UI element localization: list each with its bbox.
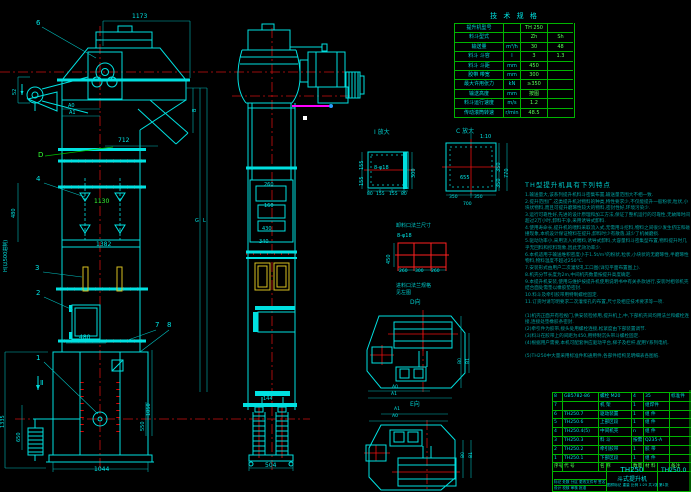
spec-cell-unit [503,23,520,32]
buckets [83,263,289,291]
spec-cell-label: 料斗 斗容 [454,51,503,60]
spec-cell-value1: 30 [520,42,547,51]
spec-cell-value1: TH 250 [520,23,547,32]
bom-cell-code: TH250.2 [562,445,598,454]
bom-cell-code: TH250.4(5) [562,427,598,436]
dim-label: 1335 [1,415,6,428]
bom-cell-material: Q235-A [643,436,669,445]
dim-label: L [203,219,206,224]
notes-block: TH型提升机具有下列特点 1.输送量大,该系列提升机料斗密集布置,输送量范围大不… [525,181,691,361]
spec-cell-value2 [547,23,573,32]
spec-cell-unit [503,32,520,41]
note-line: 9.本提升机安装,使用与维护按提升机使用说明书中有关条款进行,安装时相邻机壳结合… [525,280,691,292]
dim-label: B [193,109,198,112]
spec-cell-value1: 450 [520,61,547,70]
dim-label: E向 [410,402,420,408]
dim-label: 1:10 [480,135,491,140]
spec-row: 料斗 斗容 l 3 1.3 [454,51,574,60]
white-mark [303,116,307,120]
dim-label: 8-φ18 [374,166,389,171]
note-line: 7.安装形式由用户二次灌浆孔工口图(详见平面布置图上). [525,266,691,272]
note-line: 5.驱动功率小,采用流入式喂料,诱导式卸料,大容量料斗密集型布置,物料提升时几乎… [525,239,691,251]
dim-label: A1 [391,393,397,398]
bom-cell-qty: 1 [631,418,643,427]
dim-label: A0 [392,415,398,420]
dim-label: 700 [463,203,472,208]
spec-cell-unit: mm [503,89,520,98]
dim-label: 650 [17,432,22,442]
note-line: (1)机壳正面开有检视门,供安装检修用,提升机上,中,下部机壳间均用法兰和螺栓连… [525,314,691,326]
dim-label: B1 [467,358,472,364]
dim-label: 8 [167,322,171,329]
bom-row: 3 TH250.3 料 斗 按需 Q235-A [552,436,691,445]
dim-label: D向 [410,300,421,306]
bom-cell-no: 5 [552,418,562,427]
dim-label: 712 [118,138,129,144]
dim-label: 155 [360,160,365,170]
note-line: 2.提升范围广,这类提升机对物料的种类,特性要求少,不仅能提升一般粉状,粒状,小… [525,200,691,212]
dim-label: A0 [392,386,398,391]
spec-cell-label: 传动滚筒转速 [454,108,503,117]
dim-label: 480 [12,208,17,218]
bom-cell-no: 3 [552,436,562,445]
bom-cell-note [669,427,691,436]
top-view-e [366,425,456,490]
spec-cell-value2: 1.3 [547,51,573,60]
dim-label: 1 [36,355,40,362]
spec-cell-label: 输送量 [454,42,503,51]
dim-label: C 放大 [456,129,474,135]
bom-cell-note [669,401,691,410]
dim-label: Ⅰ 放大 [374,130,390,136]
spec-cell-label: 料斗型式 [454,32,503,41]
dim-label: 160 [264,204,274,209]
spec-cell-value2 [547,70,573,79]
spec-table-title: 技 术 规 格 [454,11,575,21]
dim-label: 350 [474,196,483,201]
dim-label: A1 [394,408,400,413]
cad-drawing-canvas: 1173 712 A0 A1 52 6 D 4 480 1130 1382 H(… [0,0,691,491]
dim-label: 3 [35,265,39,272]
bom-cell-qty: 1 [631,401,643,410]
spec-cell-value2 [547,89,573,98]
dim-label: B0 [462,452,467,458]
notes-lines: 1.输送量大,该系列提升机料斗密集布置,输送量范围大不相一致.2.提升范围广,这… [525,193,691,361]
bom-cell-name: 料 斗 [598,436,631,445]
spec-row: 最大许用张力 kN ≥350 [454,79,574,88]
dim-label: 260 [264,183,274,188]
spec-cell-label: 料斗 斗距 [454,61,503,70]
bom-cell-note [669,418,691,427]
dim-label: 155 [389,193,398,198]
dim-label: 1173 [132,14,147,20]
spec-cell-label: 胶带 带宽 [454,70,503,79]
drawing-model: TH250 [607,466,657,474]
bom-cell-code: TH250.6 [562,418,598,427]
spec-cell-label: 输送高度 [454,89,503,98]
dim-label: 350 [497,162,502,172]
dim-label: 2 [36,290,40,297]
side-view [238,24,364,466]
dim-label: 80 [367,193,373,198]
note-line: 8.机壳分节长度为2m,中间机壳数量按提升高度确定. [525,273,691,279]
spec-cell-value1: 3 [520,51,547,60]
spec-cell-label: 提升机型号 [454,23,503,32]
centerlines [0,26,427,491]
spec-cell-value2: Sh [547,32,573,41]
note-line [525,308,691,313]
bom-row: 7 机 架 1 组焊件 [552,401,691,410]
spec-row: 提升机型号 TH 250 [454,23,574,32]
bom-cell-material: 组焊件 [643,401,669,410]
bom-cell-name: 中间机壳 [598,427,631,436]
dim-label: 1130 [94,199,109,205]
dim-label: 155 [376,193,385,198]
spec-cell-value2 [547,108,573,117]
bom-cell-note [669,410,691,419]
spec-table-grid: 提升机型号 TH 250 料斗型式 Zh Sh 输送量 m³/h 30 48 料… [454,23,575,118]
dim-label: 155 [360,176,365,186]
discharge-flange-detail [395,243,449,271]
bom-cell-material: 组 件 [643,418,669,427]
spec-row: 胶带 带宽 mm 300 [454,70,574,79]
dim-label: 350 [449,196,458,201]
note-line [525,348,691,353]
bom-cell-no: 8 [552,392,562,401]
bom-row: 5 TH250.6 上部区段 1 组 件 [552,418,691,427]
dim-label: 260 [399,270,408,275]
bom-cell-material: 35 [643,392,669,401]
dim-label: D [38,152,43,159]
dim-label: 450 [387,254,392,264]
bom-cell-code: TH250.3 [562,436,598,445]
bom-cell-note [669,436,691,445]
dim-label: 6 [36,20,40,27]
spec-cell-label: 料斗运行速度 [454,98,503,107]
spec-cell-value1: Zh [520,32,547,41]
bom-row: 4 TH250.4(5) 中间机壳 n 组 件 [552,427,691,436]
spec-row: 料斗型式 Zh Sh [454,32,574,41]
detail-i-flange-bar [403,152,407,189]
spec-cell-unit: kN [503,79,520,88]
bom-cell-no: 4 [552,427,562,436]
spec-cell-value1: 按图 [520,89,547,98]
note-line: 1.输送量大,该系列提升机料斗密集布置,输送量范围大不相一致. [525,193,691,199]
dim-label: 504 [265,463,276,469]
bom-cell-no: 6 [552,410,562,419]
bom-cell-qty: 1 [631,410,643,419]
dim-label: 300 [415,270,424,275]
balloon-leaders [42,27,169,414]
note-line: (2)牵引件为胶带,接头处用螺栓连接,松紧度由下部装置调节. [525,327,691,333]
dim-label: 1050 [147,403,152,416]
bom-cell-qty: 4 [631,392,643,401]
note-line: 10.料斗及牵引胶带用特制螺栓固定. [525,293,691,299]
dim-label: 430 [262,227,272,232]
spec-cell-unit: r/min [503,108,520,117]
bom-cell-no: 7 [552,401,562,410]
spec-row: 传动滚筒转速 r/min 48.5 [454,108,574,117]
dim-label: Ⅱ [40,380,43,387]
bom-rows: 8 GB5782-86 螺栓 M20 4 35 标准件 7 机 架 1 组焊件 … [552,392,691,462]
spec-row: 料斗 斗距 mm 450 [454,61,574,70]
spec-row: 料斗运行速度 m/s 1.2 [454,98,574,107]
bom-cell-code [562,401,598,410]
spec-row: 输送高度 mm 按图 [454,89,574,98]
bom-cell-code: TH250.7 [562,410,598,419]
blue-dot [329,104,333,108]
notes-title: TH型提升机具有下列特点 [525,181,691,190]
note-line: (5)TH250中大量采用标准件和通用件,各部件结构见明细表各图纸. [525,354,691,360]
bom-cell-code: GB5782-86 [562,392,598,401]
note-line: 4.使用寿命长,提升机的喂料采取流入式,无需用斗挖料,物料之间很少发生挤压和碰撞… [525,226,691,238]
bom-cell-qty: 1 [631,445,643,454]
spec-cell-value1: 48.5 [520,108,547,117]
dim-label: 4 [36,176,40,183]
bom-row: 8 GB5782-86 螺栓 M20 4 35 标准件 [552,392,691,401]
spec-cell-unit: mm [503,61,520,70]
bom-cell-material: 组 件 [643,410,669,419]
dim-label: 8-φ18 [397,234,412,239]
spec-cell-unit: m/s [503,98,520,107]
note-line: 11.订货时请写明要求二次灌浆孔的布置,尺寸及相应技术要求等一项. [525,300,691,306]
dim-label: 7 [155,322,159,329]
dim-label: A0 [68,104,75,109]
spec-cell-value1: ≥350 [520,79,547,88]
dim-label: 340 [259,240,269,245]
bom-cell-name: 机 架 [598,401,631,410]
drawing-product-name: 斗式提升机 [607,474,657,483]
spec-cell-value1: 300 [520,70,547,79]
dim-label: 卸料口法兰尺寸 [396,224,431,229]
bom-cell-name: 牵引胶带 [598,445,631,454]
title-block-signatures: 标记 处数 分区 更改文件号 签名 日期 设计 校核 审核 批准 [553,463,607,491]
bom-cell-material: 组 件 [643,427,669,436]
spec-cell-unit: m³/h [503,42,520,51]
bom-cell-name: 上部区段 [598,418,631,427]
note-line: (4)根据用户需要,本机可配套供应驱动平台,梯子及栏杆,配用Y系列电机. [525,341,691,347]
dim-label: 144 [263,397,273,402]
dim-label: 进料口法兰规格 [396,284,431,289]
dim-label: G [195,219,199,224]
dim-label: B1 [470,452,475,458]
spec-cell-value1: 1.2 [520,98,547,107]
bom-cell-name: 螺栓 M20 [598,392,631,401]
bom-cell-note [669,445,691,454]
dim-label: 350 [497,178,502,188]
bom-cell-note: 标准件 [669,392,691,401]
spec-cell-value2 [547,79,573,88]
spec-table: 技 术 规 格 提升机型号 TH 250 料斗型式 Zh Sh 输送量 m³/h… [454,11,575,118]
spec-cell-label: 最大许用张力 [454,79,503,88]
signature-row-2: 设计 校核 审核 批准 [554,485,606,491]
bom-cell-qty: 按需 [631,436,643,445]
dim-label: 52 [13,89,18,95]
spec-cell-value2: 48 [547,42,573,51]
spec-cell-value2 [547,98,573,107]
dim-label: 1044 [94,467,109,473]
dim-label: 80 [401,193,407,198]
note-line: 6.本机适用于输送堆积密度小于1.5t/m³的粉状,粒状,小块状的无磨琢性,半磨… [525,253,691,265]
spec-cell-unit: mm [503,70,520,79]
bom-cell-name: 驱动装置 [598,410,631,419]
dim-label: A1 [69,111,76,116]
dim-label: 300 [412,168,417,178]
dim-label: 770 [505,168,510,178]
note-line: 3.运行可靠性好,先进的设计原理和加工方法,保证了整机运行的可靠性,无故障时间超… [525,213,691,225]
dim-label: 1382 [96,242,111,248]
title-block-scale-row: 图样标记 重量 比例 1:25 共1张 第1张 [607,483,691,488]
dim-label: 550 [141,421,146,431]
spec-row: 输送量 m³/h 30 48 [454,42,574,51]
dim-label: B0 [459,358,464,364]
dim-label: 655 [460,176,470,181]
dim-label: 见左图 [396,291,411,296]
dim-label: 480 [79,335,90,341]
bom-row: 6 TH250.7 驱动装置 1 组 件 [552,410,691,419]
dim-label: H(以500进制) [4,240,9,272]
dim-label: 260 [431,270,440,275]
note-line: (3)料斗在胶带上的间距为450,用特制沉头带斗螺栓固定. [525,334,691,340]
spec-cell-value2 [547,61,573,70]
bom-cell-material: 胶 带 [643,445,669,454]
spec-cell-unit: l [503,51,520,60]
bom-row: 2 TH250.2 牵引胶带 1 胶 带 [552,445,691,454]
bom-cell-no: 2 [552,445,562,454]
bom-cell-qty: n [631,427,643,436]
bom-table: 8 GB5782-86 螺栓 M20 4 35 标准件 7 机 架 1 组焊件 … [552,392,691,472]
